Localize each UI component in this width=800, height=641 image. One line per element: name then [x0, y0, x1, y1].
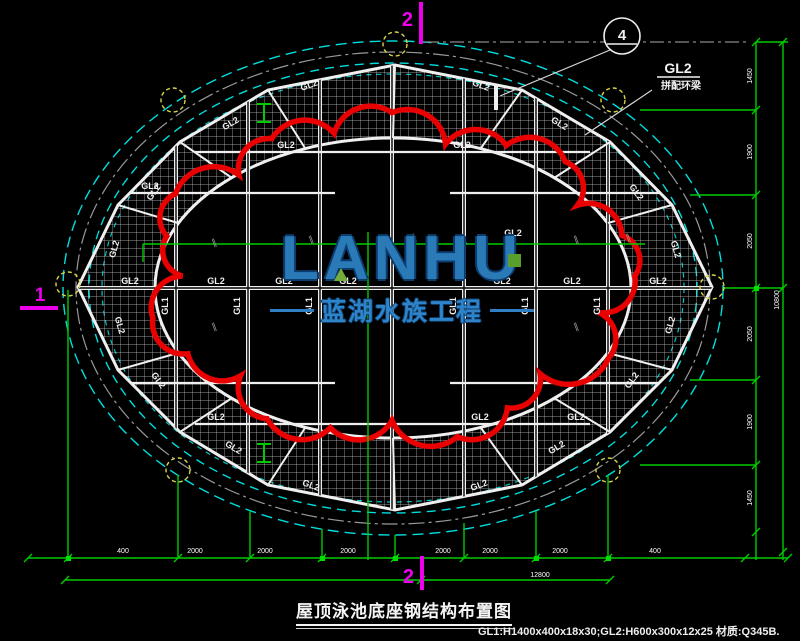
beam-label-gl2: GL2 [207, 412, 225, 422]
break-mark: ∥ [460, 234, 468, 245]
beam-label-gl2: GL2 [563, 276, 581, 286]
break-mark: ∥ [410, 232, 418, 243]
annotation-label: GL2 [664, 60, 691, 76]
beam-label-gl2: GL2 [504, 228, 522, 238]
section-mark-bottom: 2 [403, 566, 414, 588]
beam-label-gl2: GL2 [567, 412, 585, 422]
dim-value: 2000 [257, 548, 273, 555]
beam-label-gl1: GL1 [448, 297, 458, 315]
break-mark: ∥ [572, 321, 580, 332]
beam-label-gl2: GL2 [207, 276, 225, 286]
dim-value: 2000 [482, 548, 498, 555]
dim-value: 1900 [747, 414, 754, 430]
dim-value: 400 [649, 548, 661, 555]
section-mark-top: 2 [402, 9, 413, 31]
beam-label-gl1: GL1 [304, 297, 314, 315]
beam-label-gl2: GL2 [493, 276, 511, 286]
beam-label-gl1: GL1 [160, 297, 170, 315]
break-mark: ∥ [572, 234, 580, 245]
dim-value: 1450 [747, 490, 754, 506]
beam-label-gl2: GL2 [471, 412, 489, 422]
structural-plan-canvas: 4 GL2 拼配环梁 2 2 1 GL2 GL2 GL2 GL2 GL2 GL2… [0, 0, 800, 641]
drawing-title: 屋顶泳池底座钢结构布置图 [296, 597, 512, 622]
cad-drawing-viewport: 4 GL2 拼配环梁 2 2 1 GL2 GL2 GL2 GL2 GL2 GL2… [0, 0, 800, 641]
dim-total: 10800 [774, 290, 781, 310]
beam-label-gl2: GL2 [277, 140, 295, 150]
dim-value: 2050 [747, 326, 754, 342]
beam-label-gl2: GL2 [453, 140, 471, 150]
dim-value: 1450 [747, 68, 754, 84]
dim-value: 1900 [747, 144, 754, 160]
beam-label-gl1: GL1 [592, 297, 602, 315]
annotation-note: 拼配环梁 [661, 79, 702, 92]
dim-value: 2000 [340, 548, 356, 555]
detail-bubble-number: 4 [618, 27, 627, 44]
beam-label-gl2: GL2 [649, 276, 667, 286]
break-mark: ∥ [210, 237, 218, 248]
break-mark: ∥ [307, 234, 315, 245]
break-mark: ∥ [210, 321, 218, 332]
beam-label-gl1: GL1 [520, 297, 530, 315]
dim-value: 2000 [552, 548, 568, 555]
member-spec-note: GL1:H1400x400x18x30;GL2:H600x300x12x25 材… [478, 623, 779, 639]
dim-value: 2000 [435, 548, 451, 555]
section-mark-left: 1 [35, 285, 46, 306]
beam-label-gl2: GL2 [339, 276, 357, 286]
dim-value: 2000 [187, 548, 203, 555]
dim-total: 12800 [530, 572, 550, 579]
dim-value: 2050 [747, 233, 754, 249]
beam-label-gl1: GL1 [232, 297, 242, 315]
beam-label-gl2: GL2 [275, 276, 293, 286]
dim-value: 400 [117, 548, 129, 555]
beam-label-gl2: GL2 [121, 276, 139, 286]
